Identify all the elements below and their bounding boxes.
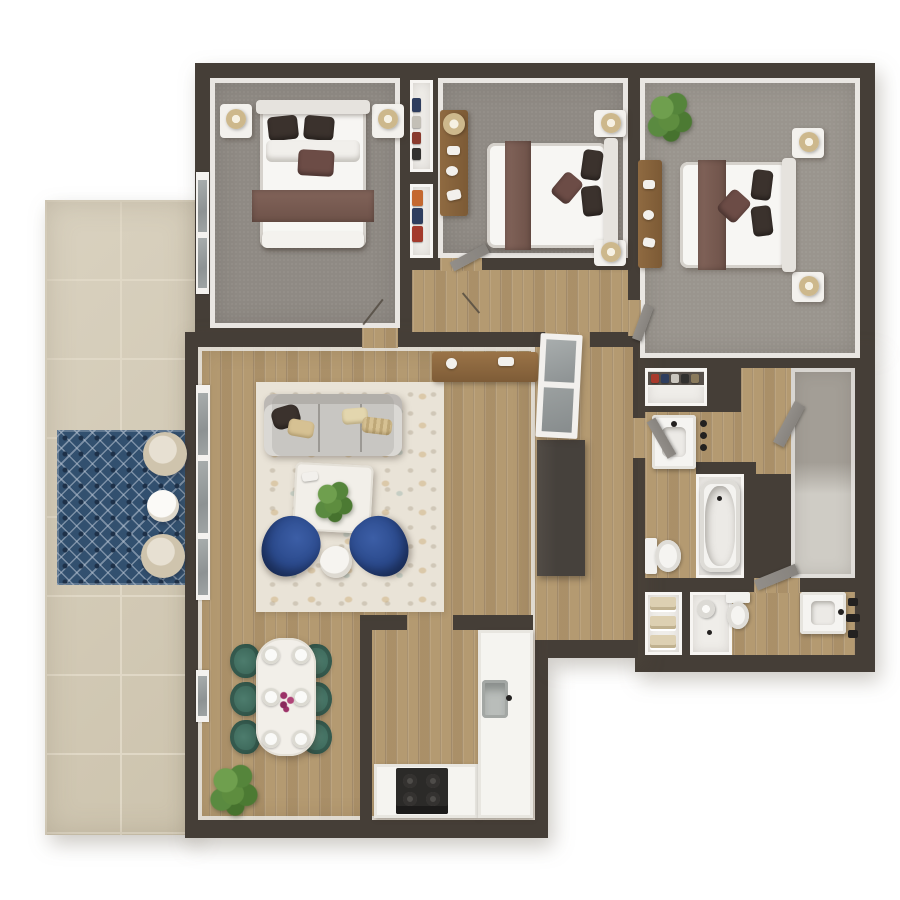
bedroom1-headboard (256, 100, 370, 114)
sink-faucet (506, 695, 512, 701)
bedroom1-lamp-right (378, 109, 398, 129)
hallway-upper-floor (412, 270, 628, 332)
dining-floor-plant (206, 760, 262, 818)
walkin-closet-floor (791, 368, 855, 578)
living-patio-door-pane (198, 539, 208, 595)
closet-lower-hanging (412, 226, 423, 242)
bedroom2-dresser-item (446, 166, 458, 176)
patio-chair-bottom (141, 534, 185, 578)
place-setting (262, 730, 280, 748)
bedroom3-pillow (750, 205, 774, 237)
wall-fixture (848, 630, 858, 638)
side-table (320, 546, 352, 578)
bath1-door-opening (633, 418, 646, 458)
shower-head (697, 600, 715, 618)
tub-wall-right (744, 474, 756, 578)
bathtub (700, 480, 740, 572)
range-burner (426, 792, 440, 806)
place-setting (292, 730, 310, 748)
tub-wall-top (696, 462, 756, 474)
patio-table (147, 490, 179, 522)
console-deco (446, 358, 457, 369)
linen-towels (650, 635, 676, 648)
range-burner (426, 774, 440, 788)
bedroom1-pillow (303, 115, 335, 142)
bath1-hook (700, 432, 707, 439)
wall-fixture (848, 598, 858, 606)
hall-glass-door-ajar (535, 333, 582, 439)
closet-upper-clothes (412, 98, 421, 112)
media-cabinet (537, 440, 585, 576)
bedroom1-footboard (262, 232, 364, 248)
bedroom1-runner (252, 190, 374, 222)
bedroom1-lamp-left (226, 109, 246, 129)
living-patio-door-pane (198, 461, 208, 533)
kitchen-range (396, 768, 448, 814)
sofa-cushion-seam (318, 404, 320, 452)
toilet2-bowl (727, 602, 749, 629)
bedroom2-headboard (604, 138, 618, 252)
bedroom1-door-opening (362, 328, 398, 348)
bedroom2-pillow (580, 149, 604, 181)
kitchen-wall-top-left (360, 615, 407, 630)
bedroom2-runner (505, 141, 531, 250)
shower-drain (707, 630, 712, 635)
bedroom2-dresser-item (447, 146, 460, 155)
vanity1-faucet (671, 421, 677, 427)
bath1-hook (700, 444, 707, 451)
bathroom2-vanity (800, 592, 846, 634)
bedroom2-lamp-top (601, 113, 621, 133)
living-patio-door-pane (198, 393, 208, 455)
bedroom3-dresser-item (643, 180, 655, 189)
kitchen-sink (482, 680, 508, 718)
range-burner (403, 792, 417, 806)
kitchen-wall-left (360, 630, 372, 820)
shoe-closet-shelf (648, 372, 704, 385)
patio-chair-top (143, 432, 187, 476)
wall-fixture (846, 614, 860, 622)
closet-upper-clothes (412, 116, 421, 128)
bedroom3-headboard (782, 158, 796, 272)
dining-window-pane (198, 676, 207, 716)
closet-lower-hanging (412, 208, 423, 224)
vanity2-faucet (838, 609, 844, 615)
place-setting (292, 646, 310, 664)
bedroom3-dresser-item (642, 237, 655, 248)
linen-wall (682, 592, 690, 655)
bedroom3-dresser-item (643, 210, 654, 220)
linen-towels (650, 616, 676, 629)
bedroom1-pillow (267, 114, 299, 141)
place-setting (262, 646, 280, 664)
floor-plan-canvas (0, 0, 900, 900)
bedroom3-runner (698, 160, 726, 270)
bath1-hook (700, 420, 707, 427)
range-burner (403, 774, 417, 788)
bedroom3-plant (644, 88, 696, 144)
coffee-table-plant (312, 478, 356, 524)
closet-upper-clothes (412, 148, 421, 160)
closet-upper-clothes (412, 132, 421, 144)
toilet1-bowl (655, 540, 681, 572)
kitchen-counter-right (478, 630, 533, 818)
bedroom3-lamp-bottom (799, 276, 819, 296)
kitchen-wall-top-right (453, 615, 533, 630)
bedroom3-lamp-top (799, 132, 819, 152)
bedroom1-accent-pillow (297, 149, 334, 177)
closet-lower-hanging (412, 190, 423, 206)
console-deco (498, 357, 514, 366)
bedroom1-window-pane (198, 180, 207, 232)
bedroom2-dresser-lamp (443, 113, 465, 135)
bedroom1-window-pane (198, 238, 207, 288)
bedroom2-lamp-bottom (601, 242, 621, 262)
tub-drain (717, 496, 722, 501)
bedroom3-pillow (750, 169, 774, 201)
linen-towels (650, 597, 676, 610)
bedroom2-pillow (580, 185, 603, 217)
